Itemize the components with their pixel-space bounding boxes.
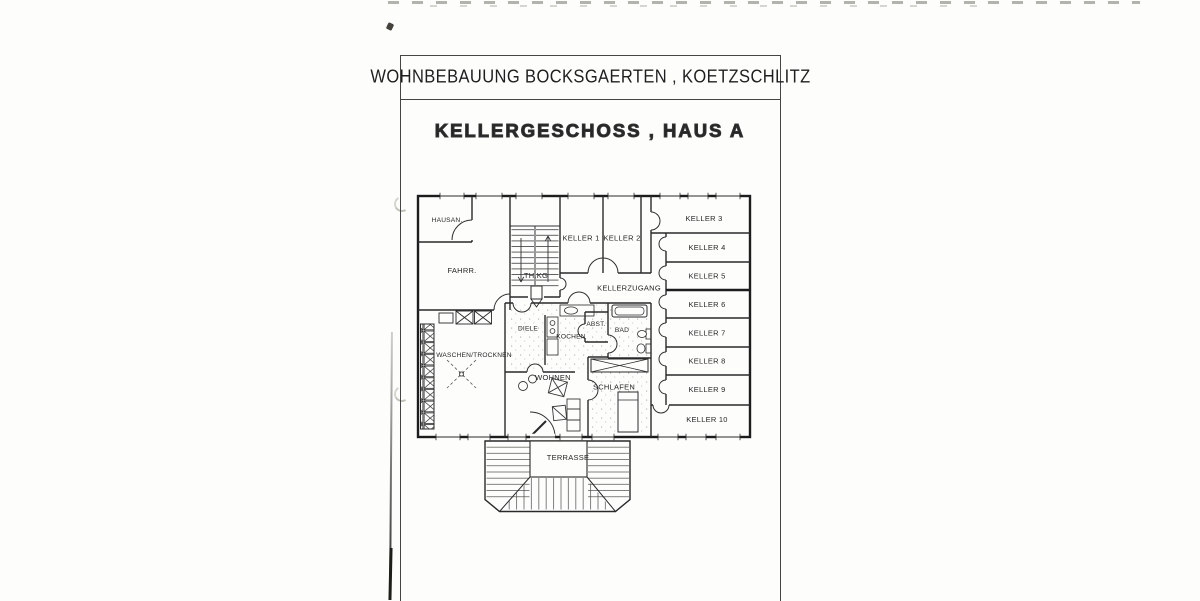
paper-edge-left-dark bbox=[388, 548, 392, 600]
room-label-keller8: KELLER 8 bbox=[688, 357, 725, 366]
room-label-keller6: KELLER 6 bbox=[688, 300, 725, 309]
toilet-symbol bbox=[637, 344, 651, 353]
room-label-th-kg: TH.KG bbox=[524, 271, 548, 280]
room-label-wohnen: WOHNEN bbox=[535, 373, 571, 382]
scan-noise-line bbox=[388, 1, 1140, 4]
glass-block-wall bbox=[421, 324, 435, 429]
room-label-keller4: KELLER 4 bbox=[688, 243, 725, 252]
room-label-keller2: KELLER 2 bbox=[603, 234, 640, 243]
sheet-subtitle-block: KELLERGESCHOSS , HAUS A bbox=[401, 112, 780, 148]
room-label-schlafen: SCHLAFEN bbox=[593, 383, 635, 392]
sheet-subtitle: KELLERGESCHOSS , HAUS A bbox=[435, 120, 746, 141]
floor-plan-svg: HAUSAN. FAHRR. TH.KG KELLER 1 KELLER 2 K… bbox=[410, 190, 760, 530]
stairs bbox=[510, 226, 560, 290]
windows-top bbox=[440, 193, 740, 199]
room-label-fahrr: FAHRR. bbox=[447, 266, 476, 275]
room-label-keller3: KELLER 3 bbox=[685, 214, 722, 223]
room-label-diele: DIELE bbox=[518, 326, 538, 333]
bed-symbol bbox=[618, 392, 638, 432]
room-label-waschen: WASCHEN/TROCKNEN bbox=[436, 352, 512, 359]
bathtub-symbol bbox=[612, 305, 647, 317]
room-label-keller9: KELLER 9 bbox=[688, 385, 725, 394]
room-label-terrasse: TERRASSE bbox=[547, 453, 589, 462]
scan-noise-line-2 bbox=[430, 5, 990, 7]
ink-blot bbox=[386, 22, 394, 31]
title-band: WOHNBEBAUUNG BOCKSGAERTEN , KOETZSCHLITZ bbox=[401, 56, 780, 100]
room-label-keller1: KELLER 1 bbox=[562, 234, 599, 243]
room-label-bad: BAD bbox=[615, 327, 629, 334]
room-label-kellerzugang: KELLERZUGANG bbox=[597, 284, 661, 293]
room-label-abst: ABST. bbox=[586, 321, 605, 328]
room-label-keller10: KELLER 10 bbox=[686, 415, 727, 424]
wardrobe-symbol bbox=[591, 359, 648, 372]
room-label-keller7: KELLER 7 bbox=[688, 329, 725, 338]
room-label-kochen: KOCHEN bbox=[556, 334, 585, 341]
room-label-hausan: HAUSAN. bbox=[432, 217, 463, 224]
room-label-keller5: KELLER 5 bbox=[688, 272, 725, 281]
terrace bbox=[485, 441, 630, 512]
sheet-title: WOHNBEBAUUNG BOCKSGAERTEN , KOETZSCHLITZ bbox=[370, 67, 810, 88]
